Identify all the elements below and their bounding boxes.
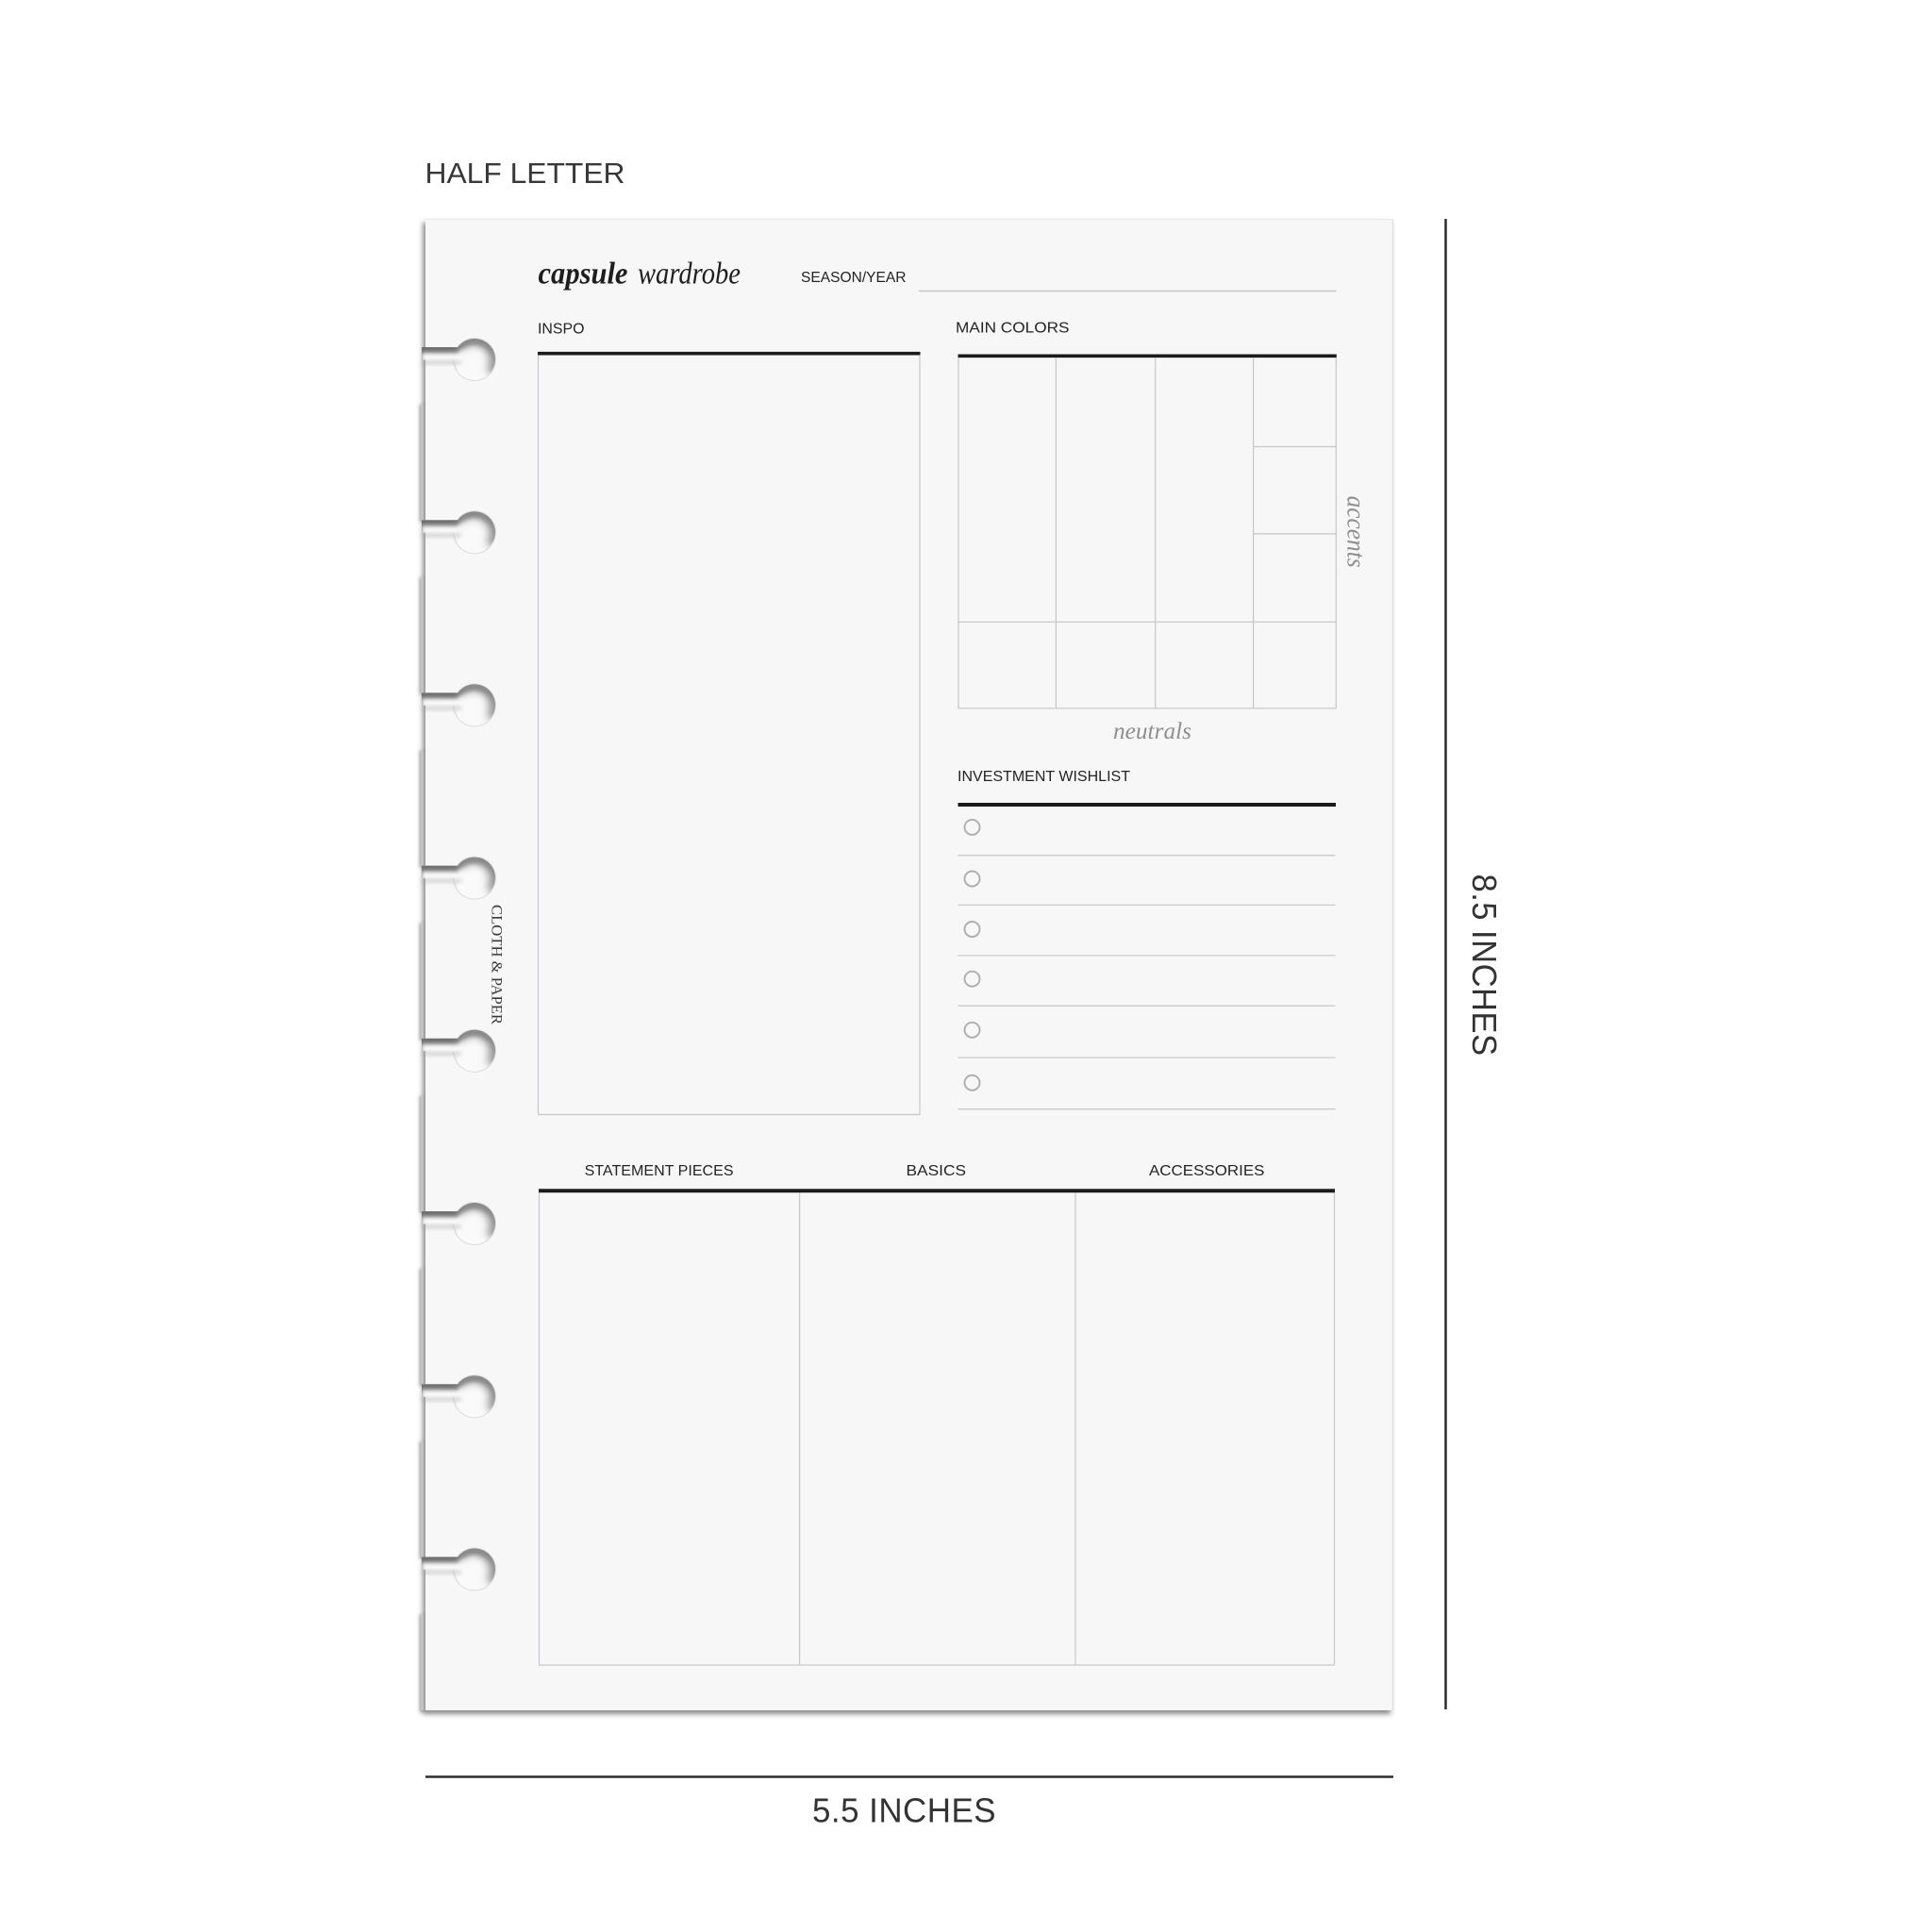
svg-text:MAIN COLORS: MAIN COLORS [956,321,1070,337]
svg-text:HALF LETTER: HALF LETTER [425,157,625,190]
svg-text:wardrobe: wardrobe [638,258,741,291]
svg-text:INSPO: INSPO [538,321,585,337]
svg-text:SEASON/YEAR: SEASON/YEAR [801,270,907,286]
svg-text:STATEMENT PIECES: STATEMENT PIECES [585,1163,734,1179]
svg-text:neutrals: neutrals [1113,719,1191,744]
svg-text:capsule: capsule [539,258,628,291]
svg-text:5.5 INCHES: 5.5 INCHES [812,1791,996,1830]
svg-text:8.5 INCHES: 8.5 INCHES [1465,874,1504,1057]
svg-text:INVESTMENT WISHLIST: INVESTMENT WISHLIST [958,769,1130,785]
svg-text:BASICS: BASICS [907,1163,967,1179]
svg-text:CLOTH & PAPER: CLOTH & PAPER [489,905,505,1024]
svg-text:ACCESSORIES: ACCESSORIES [1149,1163,1265,1179]
svg-text:accents: accents [1342,496,1371,568]
